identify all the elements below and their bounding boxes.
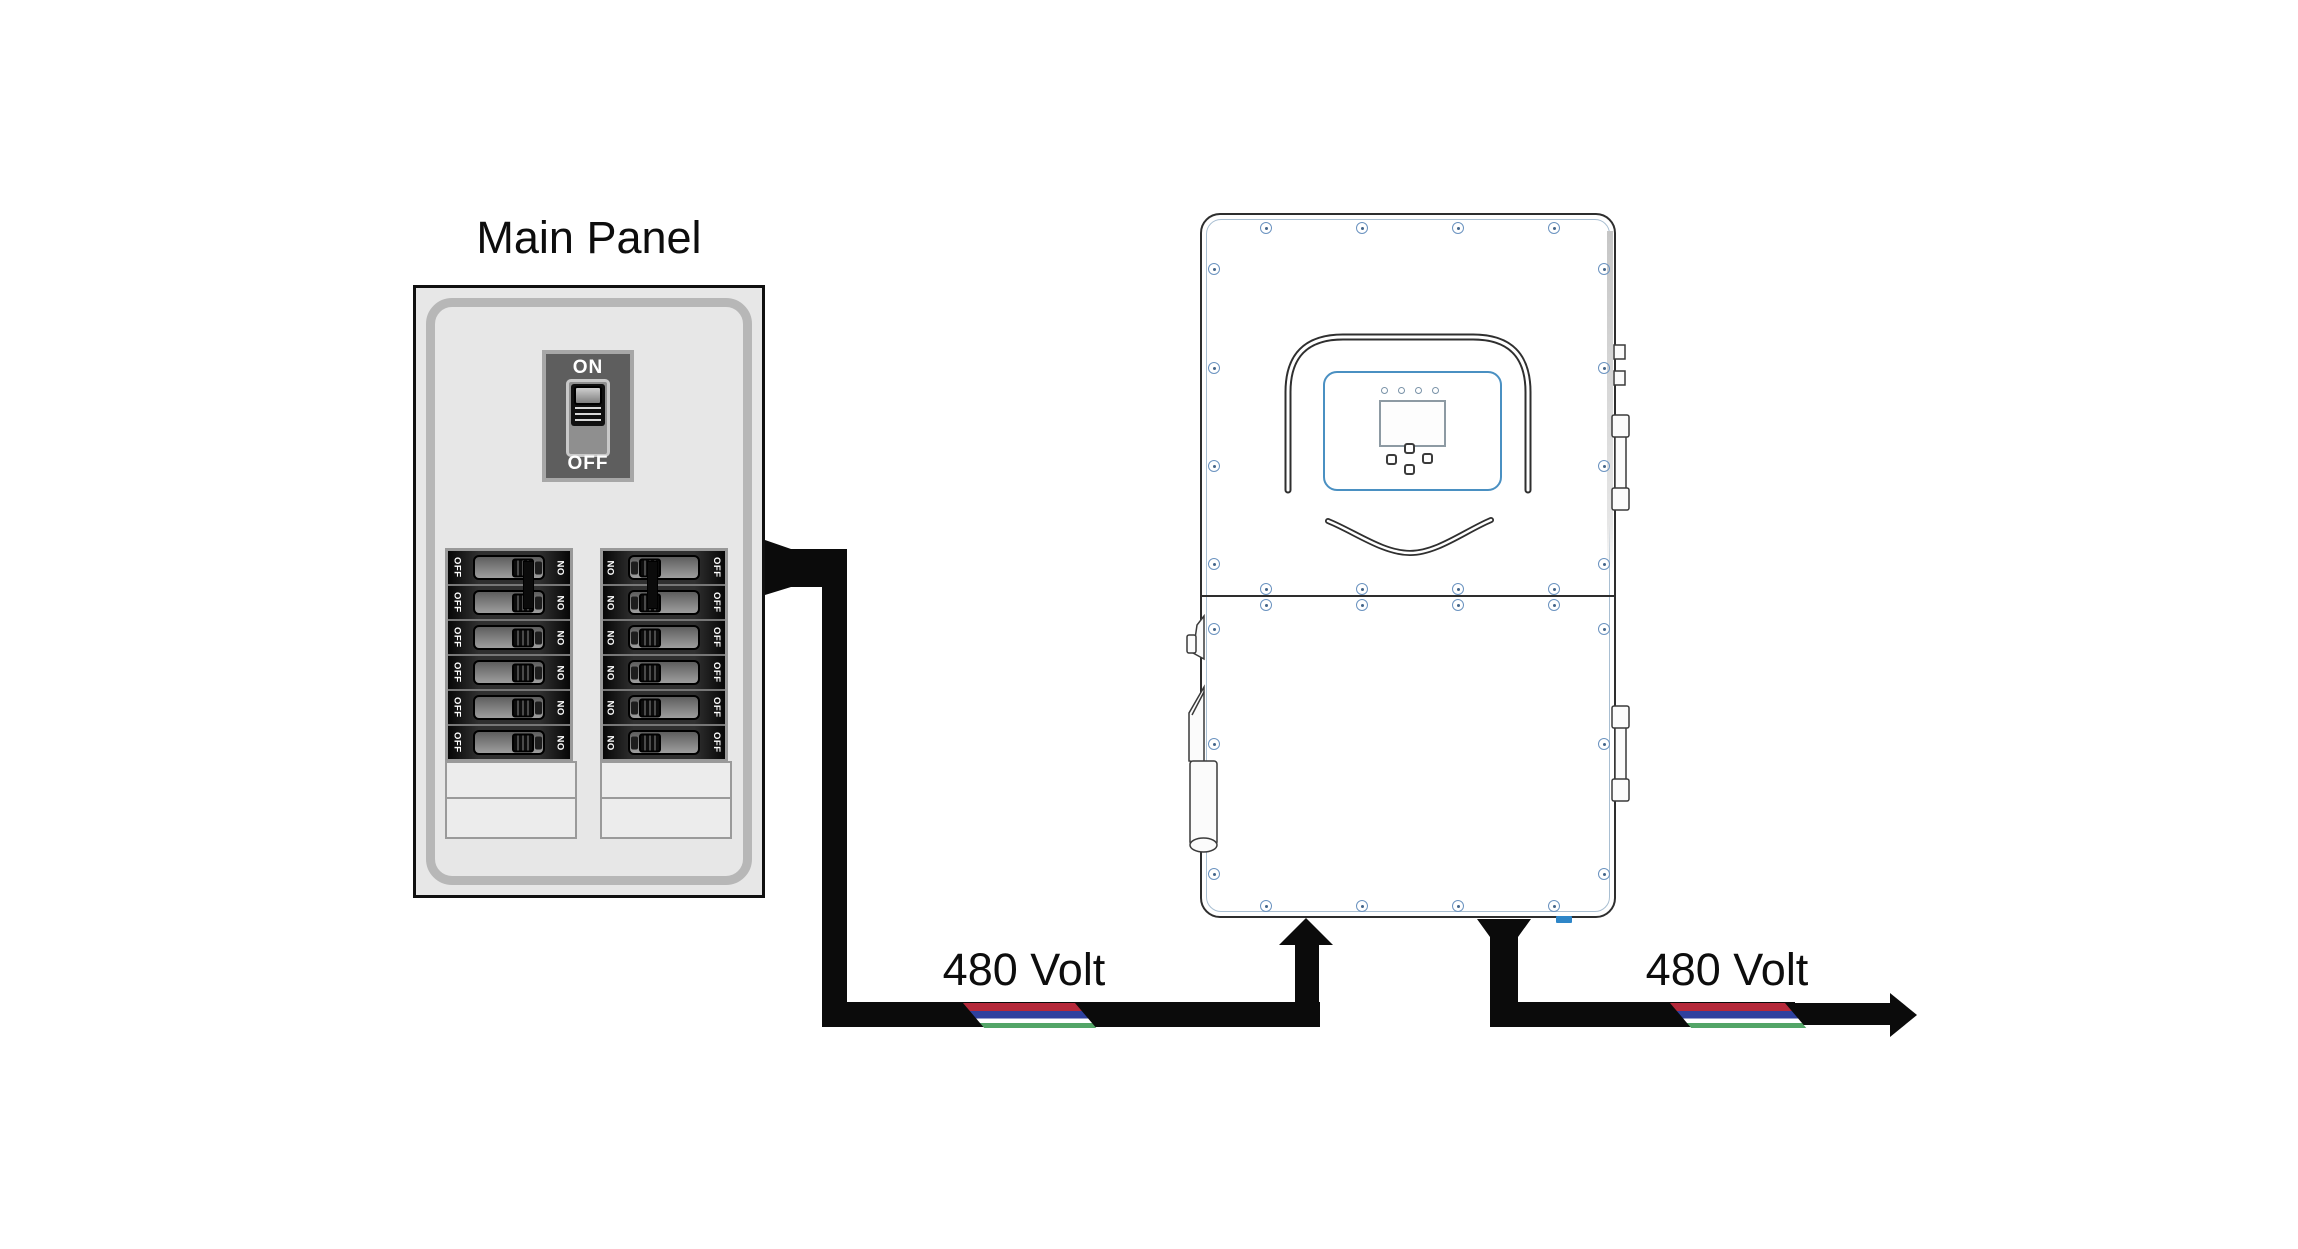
breaker-left-label: ON <box>607 735 617 750</box>
breaker-lever <box>639 628 661 647</box>
breaker-left-label: OFF <box>452 627 462 648</box>
breaker-toggle <box>628 590 700 615</box>
breaker-left-label: OFF <box>452 662 462 683</box>
output-voltage-label: 480 Volt <box>1607 944 1847 996</box>
breaker-right-label: OFF <box>712 592 722 613</box>
breaker-right-label: ON <box>557 595 567 610</box>
cabinet-seam <box>1202 595 1614 597</box>
cable-riser <box>1295 941 1319 1027</box>
breaker-toggle <box>628 555 700 580</box>
breaker-right-label: OFF <box>712 697 722 718</box>
phase-stripe <box>1687 1023 1806 1028</box>
breaker-left-label: OFF <box>452 557 462 578</box>
screw-icon <box>1548 900 1560 912</box>
led-indicator <box>1432 387 1439 394</box>
breaker-left-label: OFF <box>452 592 462 613</box>
screw-icon <box>1260 222 1272 234</box>
breaker-right-label: OFF <box>712 627 722 648</box>
screw-icon <box>1598 263 1610 275</box>
led-indicator <box>1398 387 1405 394</box>
screw-icon <box>1208 738 1220 750</box>
screw-icon <box>1356 222 1368 234</box>
breaker-right-label: ON <box>557 735 567 750</box>
breaker-left-label: OFF <box>452 732 462 753</box>
main-switch-slot <box>566 379 610 457</box>
breaker-lever <box>512 628 534 647</box>
screw-icon <box>1260 599 1272 611</box>
led-indicator <box>1415 387 1422 394</box>
phase-stripe <box>1677 1011 1798 1019</box>
breaker-lever <box>639 733 661 752</box>
phase-stripe <box>980 1023 1096 1028</box>
breaker-toggle <box>628 730 700 755</box>
input-voltage-label: 480 Volt <box>899 944 1149 996</box>
cable-horizontal-run <box>822 1002 1320 1027</box>
breaker-left-label: ON <box>607 630 617 645</box>
screw-icon <box>1548 599 1560 611</box>
cabinet-side-shade <box>1607 231 1613 576</box>
breaker-switch: OFFON <box>448 726 570 759</box>
breaker-column-left: OFFONOFFONOFFONOFFONOFFONOFFON <box>445 548 573 762</box>
hinge-bar-icon <box>1615 430 1626 495</box>
main-panel: ON OFF OFFONOFFONOFFONOFFONOFFONOFFON ON… <box>413 285 765 898</box>
blank-slot <box>445 797 577 839</box>
breaker-right-label: OFF <box>712 662 722 683</box>
inverter-inner-frame <box>1206 219 1610 912</box>
breaker-lever <box>512 663 534 682</box>
inverter-display <box>1323 371 1502 491</box>
phase-stripe <box>1683 1019 1802 1024</box>
breaker-toggle <box>473 660 545 685</box>
breaker-right-label: ON <box>557 630 567 645</box>
hinge-bar-icon <box>1615 720 1626 786</box>
screw-icon <box>1260 583 1272 595</box>
nav-button-down <box>1404 464 1415 475</box>
main-breaker-switch: ON OFF <box>542 350 634 482</box>
breaker-right-label: ON <box>557 665 567 680</box>
main-switch-on-label: ON <box>546 357 630 379</box>
screw-icon <box>1598 738 1610 750</box>
breaker-right-label: ON <box>557 700 567 715</box>
breaker-left-label: ON <box>607 665 617 680</box>
main-switch-lever <box>571 384 605 426</box>
nav-button-up <box>1404 443 1415 454</box>
breaker-toggle <box>628 660 700 685</box>
breaker-toggle <box>473 730 545 755</box>
breaker-switch: OFFON <box>448 691 570 724</box>
screw-icon <box>1548 583 1560 595</box>
main-switch-off-label: OFF <box>546 453 630 475</box>
screw-icon <box>1260 900 1272 912</box>
cable-vertical-run <box>822 549 847 1027</box>
screw-icon <box>1598 362 1610 374</box>
phase-stripe <box>970 1011 1088 1019</box>
wiring-diagram: Main Panel ON OFF OFFONOFFONOFFONOFFONOF… <box>0 0 2298 1249</box>
breaker-column-right: ONOFFONOFFONOFFONOFFONOFFONOFF <box>600 548 728 762</box>
breaker-left-label: ON <box>607 700 617 715</box>
breaker-toggle <box>473 555 545 580</box>
phase-stripe <box>963 1003 1082 1011</box>
screw-icon <box>1452 583 1464 595</box>
phase-stripe <box>976 1019 1092 1024</box>
breaker-right-label: ON <box>557 560 567 575</box>
phase-stripes-output <box>1670 1003 1806 1028</box>
breaker-toggle <box>473 695 545 720</box>
breaker-toggle <box>473 625 545 650</box>
arrow-right-icon <box>1890 993 1917 1037</box>
breaker-switch: ONOFF <box>603 621 725 654</box>
cable-panel-flare <box>765 540 847 595</box>
screw-icon <box>1356 599 1368 611</box>
screw-icon <box>1208 558 1220 570</box>
screw-icon <box>1208 623 1220 635</box>
breaker-switch: ONOFF <box>603 551 725 584</box>
led-row <box>1381 387 1439 394</box>
breaker-toggle <box>628 625 700 650</box>
breaker-switch: OFFON <box>448 586 570 619</box>
screw-icon <box>1208 460 1220 472</box>
breaker-switch: OFFON <box>448 551 570 584</box>
screw-icon <box>1598 868 1610 880</box>
arrow-up-icon <box>1279 918 1333 945</box>
breaker-lever <box>512 698 534 717</box>
screw-icon <box>1356 900 1368 912</box>
cable-horizontal-run <box>1490 1002 1795 1027</box>
breaker-switch: ONOFF <box>603 691 725 724</box>
mount-bracket-tab <box>1187 635 1196 653</box>
screw-icon <box>1356 583 1368 595</box>
breaker-right-label: OFF <box>712 557 722 578</box>
phase-stripes-input <box>963 1003 1096 1028</box>
cable-inverter-flare <box>1477 919 1531 1027</box>
breaker-switch: ONOFF <box>603 656 725 689</box>
vector-layer <box>0 0 2298 1249</box>
breaker-tie-bar <box>523 561 534 609</box>
cable-horizontal-thin <box>1795 1003 1892 1025</box>
nav-button-right <box>1422 453 1433 464</box>
breaker-left-label: ON <box>607 560 617 575</box>
breaker-tie-bar <box>647 561 658 609</box>
screw-icon <box>1598 558 1610 570</box>
breaker-left-label: ON <box>607 595 617 610</box>
screw-icon <box>1548 222 1560 234</box>
inverter-unit <box>1200 213 1616 918</box>
nav-button-left <box>1386 454 1397 465</box>
breaker-switch: ONOFF <box>603 726 725 759</box>
screw-icon <box>1208 263 1220 275</box>
bottom-connector <box>1556 916 1572 923</box>
breaker-switch: OFFON <box>448 656 570 689</box>
display-screen <box>1379 400 1446 447</box>
screw-icon <box>1452 900 1464 912</box>
screw-icon <box>1452 222 1464 234</box>
screw-icon <box>1598 460 1610 472</box>
screw-icon <box>1208 362 1220 374</box>
breaker-lever <box>512 733 534 752</box>
breaker-switch: ONOFF <box>603 586 725 619</box>
breaker-toggle <box>473 590 545 615</box>
screw-icon <box>1598 623 1610 635</box>
breaker-switch: OFFON <box>448 621 570 654</box>
blank-slot <box>600 797 732 839</box>
screw-icon <box>1208 868 1220 880</box>
screw-icon <box>1452 599 1464 611</box>
breaker-left-label: OFF <box>452 697 462 718</box>
main-panel-title: Main Panel <box>413 212 765 264</box>
breaker-right-label: OFF <box>712 732 722 753</box>
led-indicator <box>1381 387 1388 394</box>
breaker-toggle <box>628 695 700 720</box>
phase-stripe <box>1670 1003 1792 1011</box>
breaker-lever <box>639 698 661 717</box>
breaker-lever <box>639 663 661 682</box>
